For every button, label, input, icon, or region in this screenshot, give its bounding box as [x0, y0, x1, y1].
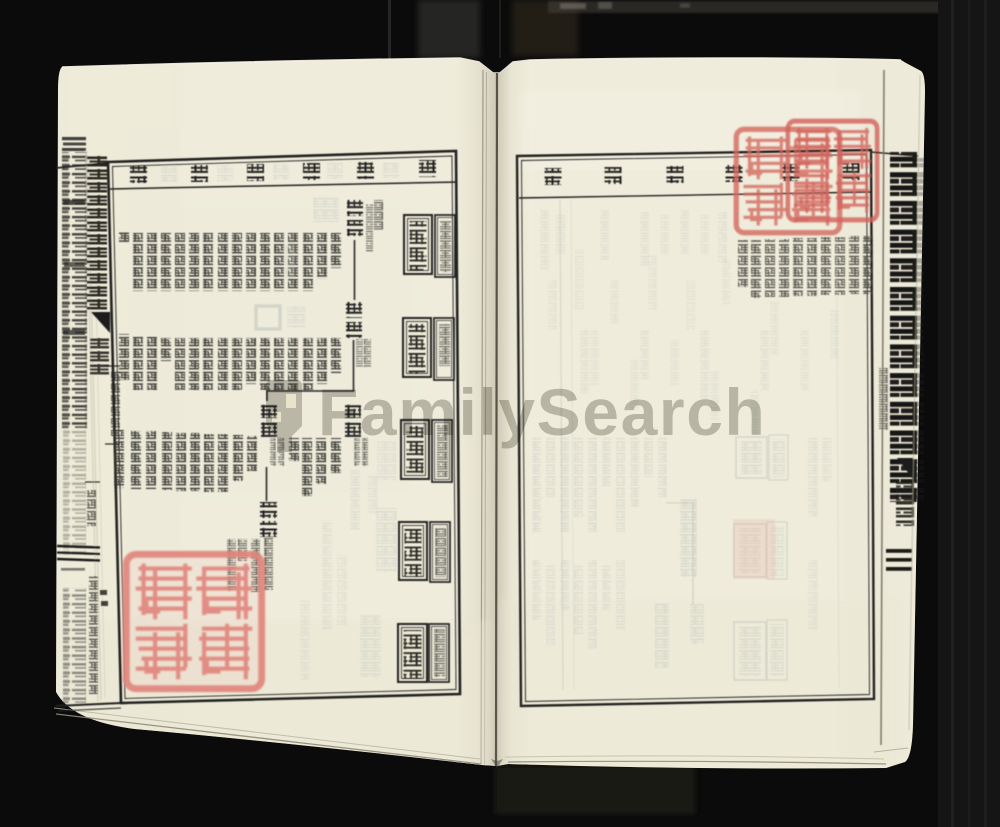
- svg-text:FamilySearch: FamilySearch: [318, 375, 766, 449]
